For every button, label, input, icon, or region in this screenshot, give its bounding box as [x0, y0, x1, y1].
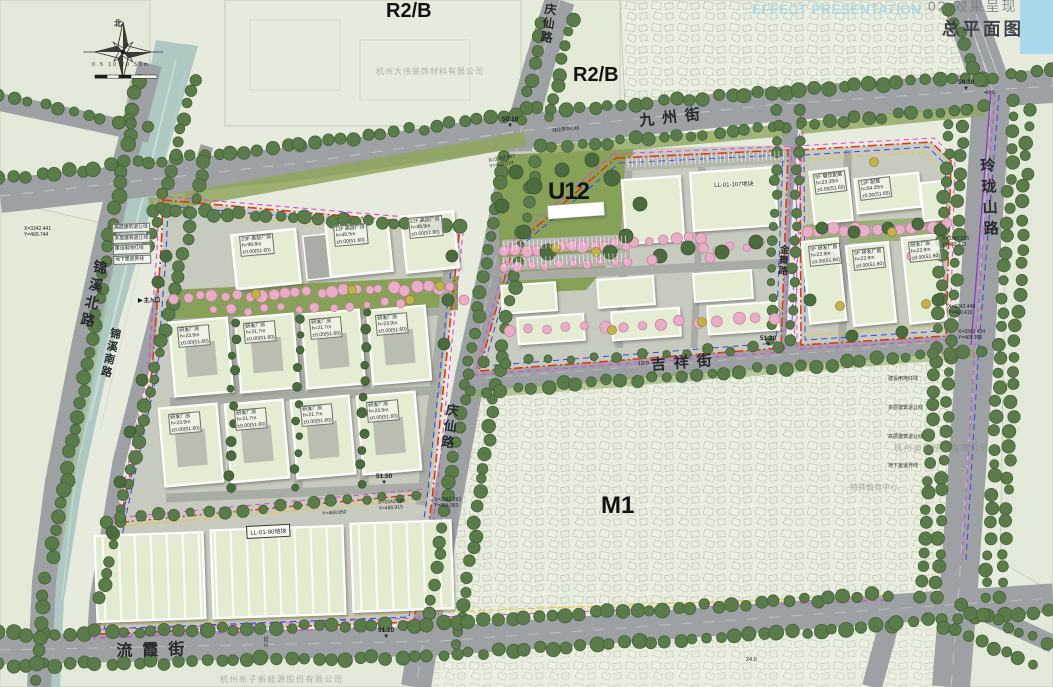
elevation-marker-icon: ▼: [381, 481, 387, 486]
tree-icon: [997, 259, 1010, 272]
building-label: 11F 高层厂房 h=49.9m ±0.00(51.60): [408, 215, 443, 239]
tree-icon: [41, 99, 51, 109]
tree-icon: [251, 145, 262, 156]
tree-icon: [601, 374, 612, 385]
tree-icon: [1001, 472, 1013, 484]
tree-icon: [259, 505, 268, 514]
tree-icon: [288, 213, 298, 223]
tree-icon: [221, 209, 234, 222]
tree-icon: [827, 624, 837, 634]
tree-icon: [363, 129, 374, 140]
tree-icon: [438, 338, 450, 350]
tree-icon: [104, 557, 115, 568]
parking-stall-line: [537, 257, 538, 266]
road-width-label: 32.0: [262, 636, 268, 647]
tree-icon: [578, 139, 587, 148]
tree-icon: [348, 286, 357, 295]
tree-icon: [361, 361, 369, 369]
tree-icon: [546, 142, 556, 152]
tree-icon: [684, 603, 696, 615]
tree-icon: [62, 163, 76, 177]
shed-2: [211, 526, 346, 619]
tree-icon: [461, 395, 471, 405]
tree-icon: [794, 104, 805, 115]
tree-icon: [525, 74, 538, 87]
tree-icon: [937, 280, 948, 291]
tree-icon: [228, 625, 238, 635]
tree-icon: [457, 599, 470, 612]
tree-icon: [1022, 168, 1034, 180]
tree-icon: [934, 224, 946, 236]
tree-icon: [544, 355, 552, 363]
tree-icon: [227, 484, 236, 493]
cherry-tree-icon: [705, 253, 715, 263]
tree-icon: [50, 630, 60, 640]
tree-icon: [442, 294, 454, 306]
tree-icon: [989, 445, 1000, 456]
tree-icon: [949, 105, 960, 116]
tree-icon: [523, 213, 532, 222]
main-entrance-label: ▶ 主入口: [138, 296, 160, 304]
tree-icon: [940, 162, 953, 175]
tree-icon: [237, 147, 250, 160]
tree-icon: [642, 132, 655, 145]
tree-icon: [795, 176, 804, 185]
compass-center: [121, 50, 126, 55]
tree-icon: [158, 623, 170, 635]
tree-icon: [487, 406, 499, 418]
tree-icon: [698, 131, 708, 141]
tree-icon: [223, 146, 237, 160]
plot-label-ll01107: LL-01-107地块: [714, 179, 754, 189]
tree-icon: [933, 560, 946, 573]
tree-icon: [993, 614, 1004, 625]
tree-icon: [552, 244, 561, 253]
tree-icon: [64, 658, 76, 670]
tree-icon: [486, 232, 496, 242]
tree-icon: [752, 86, 764, 98]
entrance-text: 主入口: [144, 296, 161, 304]
tree-icon: [789, 306, 798, 315]
tree-icon: [160, 250, 172, 262]
tree-icon: [767, 595, 779, 607]
tree-icon: [102, 241, 113, 252]
cherry-tree-icon: [580, 322, 588, 330]
cherry-tree-icon: [423, 281, 434, 292]
tree-icon: [555, 163, 569, 177]
tree-icon: [675, 635, 688, 648]
tree-icon: [517, 225, 531, 239]
tree-icon: [590, 102, 602, 114]
tree-icon: [944, 120, 953, 129]
tree-icon: [922, 613, 935, 626]
tree-icon: [433, 536, 445, 548]
tree-icon: [1024, 104, 1036, 116]
tree-icon: [922, 486, 935, 499]
tree-icon: [61, 461, 75, 475]
tree-icon: [791, 83, 806, 98]
tree-icon: [558, 609, 572, 623]
tree-icon: [517, 115, 527, 125]
tree-icon: [70, 424, 80, 434]
tree-icon: [325, 618, 338, 631]
tree-icon: [1015, 70, 1026, 81]
tree-icon: [814, 624, 829, 639]
tree-icon: [461, 587, 471, 597]
tree-icon: [33, 631, 47, 645]
tree-icon: [126, 118, 137, 129]
tree-icon: [1008, 335, 1020, 347]
tree-icon: [226, 451, 236, 461]
tree-icon: [207, 209, 220, 222]
cherry-tree-icon: [698, 243, 708, 253]
tree-icon: [574, 102, 585, 113]
tree-icon: [35, 617, 48, 630]
tree-icon: [57, 483, 72, 498]
tree-icon: [976, 608, 990, 622]
tree-icon: [546, 643, 560, 657]
tree-icon: [985, 516, 997, 528]
tree-icon: [585, 153, 599, 167]
building-label: 研发厂房 h=23.9m ±0.00(51.60): [908, 239, 942, 263]
tree-icon: [993, 368, 1003, 378]
tree-icon: [63, 445, 76, 458]
tree-icon: [431, 120, 443, 132]
site-plan-map: [0, 0, 1053, 687]
tree-icon: [574, 640, 585, 651]
tree-icon: [293, 363, 301, 371]
building-label: 研发厂房 h=21.7m ±0.00(51.60): [234, 407, 268, 430]
tree-icon: [785, 335, 796, 346]
tree-icon: [792, 208, 802, 218]
cherry-tree-icon: [541, 263, 548, 270]
tree-icon: [488, 218, 500, 230]
tree-icon: [826, 360, 839, 373]
tree-icon: [406, 296, 415, 305]
tree-icon: [114, 176, 127, 189]
tree-icon: [774, 120, 784, 130]
tree-icon: [479, 650, 489, 660]
tree-icon: [64, 628, 77, 641]
tree-icon: [471, 500, 483, 512]
tree-icon: [55, 497, 66, 508]
tree-icon: [1004, 395, 1017, 408]
tree-icon: [603, 639, 614, 650]
cherry-tree-icon: [567, 240, 578, 251]
tree-icon: [483, 244, 493, 254]
tree-icon: [687, 634, 697, 644]
tree-icon: [999, 578, 1008, 587]
building-label: 研发厂房 h=23.9m ±0.00(51.60): [168, 411, 202, 434]
tree-icon: [172, 271, 184, 283]
tree-icon: [772, 190, 781, 199]
tree-icon: [1004, 485, 1013, 494]
parking-stall-line: [766, 152, 767, 161]
tree-icon: [738, 124, 749, 135]
tree-icon: [1006, 125, 1019, 138]
tree-icon: [33, 644, 45, 656]
tree-icon: [115, 512, 126, 523]
tree-icon: [772, 147, 783, 158]
tree-icon: [791, 165, 801, 175]
cherry-tree-icon: [366, 286, 374, 294]
tree-icon: [478, 357, 489, 368]
tree-icon: [994, 352, 1006, 364]
elevation-marker: 50.30 ▼: [958, 80, 974, 92]
tree-icon: [286, 652, 299, 665]
tree-icon: [47, 167, 61, 181]
tree-icon: [232, 335, 241, 344]
tree-icon: [889, 616, 903, 630]
tree-icon: [929, 576, 942, 589]
cherry-tree-icon: [543, 325, 552, 334]
tree-icon: [973, 73, 986, 86]
tree-icon: [727, 125, 739, 137]
tree-icon: [114, 476, 126, 488]
tree-icon: [152, 276, 164, 288]
tree-icon: [659, 95, 670, 106]
cherry-tree-icon: [623, 258, 632, 267]
tree-icon: [326, 654, 338, 666]
coord-annotation: X=3342.441 Y=468.744: [24, 226, 51, 238]
tree-icon: [409, 651, 420, 662]
tree-icon: [467, 343, 477, 353]
tree-icon: [671, 130, 683, 142]
tree-icon: [52, 102, 65, 115]
tree-icon: [932, 294, 944, 306]
tree-icon: [602, 101, 612, 111]
cherry-tree-icon: [504, 326, 515, 337]
tree-icon: [240, 623, 253, 636]
tree-icon: [156, 202, 165, 211]
tree-icon: [933, 324, 942, 333]
cherry-tree-icon: [750, 313, 760, 323]
tree-icon: [1005, 455, 1017, 467]
legend-item: 建设用地红线: [113, 244, 151, 254]
tree-icon: [150, 375, 159, 384]
cherry-tree-icon: [658, 235, 668, 245]
parking-stall-line: [670, 156, 671, 165]
tree-icon: [773, 137, 782, 146]
cherry-tree-icon: [210, 306, 217, 313]
tree-icon: [1000, 532, 1012, 544]
tree-icon: [769, 222, 777, 230]
tree-icon: [804, 294, 816, 306]
tree-icon: [756, 596, 768, 608]
tree-icon: [958, 138, 969, 149]
parking-stall-line: [754, 152, 755, 161]
tree-icon: [484, 434, 496, 446]
tree-icon: [927, 369, 939, 381]
tree-icon: [47, 551, 60, 564]
cherry-tree-icon: [446, 283, 454, 291]
tree-icon: [295, 450, 302, 457]
tree-icon: [752, 363, 762, 373]
tree-icon: [616, 100, 627, 111]
tree-icon: [107, 659, 118, 670]
tree-icon: [464, 555, 476, 567]
tree-icon: [8, 171, 20, 183]
elevation-marker: 51.50 ▼: [376, 474, 392, 486]
tree-icon: [176, 248, 189, 261]
tree-icon: [876, 114, 886, 124]
cherry-tree-icon: [459, 295, 469, 305]
cherry-tree-icon: [196, 291, 204, 299]
tree-icon: [797, 122, 804, 129]
tree-icon: [950, 258, 959, 267]
tree-icon: [909, 617, 919, 627]
tree-icon: [520, 102, 533, 115]
tree-icon: [931, 532, 945, 546]
tree-icon: [1014, 628, 1023, 637]
tree-icon: [231, 366, 240, 375]
tree-icon: [1043, 604, 1053, 616]
tree-icon: [156, 348, 165, 357]
tree-icon: [337, 212, 350, 225]
tree-icon: [604, 170, 620, 186]
tree-icon: [471, 113, 482, 124]
cherry-tree-icon: [222, 293, 230, 301]
cherry-tree-icon: [345, 303, 354, 312]
tree-icon: [360, 429, 369, 438]
tree-icon: [564, 27, 573, 36]
cherry-tree-icon: [712, 316, 723, 327]
tree-icon: [425, 595, 435, 605]
tree-icon: [876, 78, 891, 93]
tree-icon: [920, 516, 932, 528]
tree-icon: [990, 460, 999, 469]
tree-icon: [997, 561, 1008, 572]
building-label: 研发厂房 h=21.7m ±0.00(51.60): [300, 403, 334, 426]
tree-icon: [51, 525, 62, 536]
tree-icon: [1020, 151, 1030, 161]
tree-icon: [439, 651, 449, 661]
tree-icon: [848, 226, 860, 238]
tree-icon: [30, 675, 40, 685]
tree-icon: [1001, 185, 1013, 197]
tree-icon: [357, 408, 367, 418]
tree-icon: [945, 149, 955, 159]
tree-icon: [217, 655, 228, 666]
tree-icon: [419, 618, 433, 632]
tree-icon: [7, 660, 20, 673]
tree-icon: [358, 447, 366, 455]
tree-icon: [299, 654, 309, 664]
tree-icon: [629, 131, 642, 144]
tree-icon: [645, 637, 656, 648]
tree-icon: [482, 388, 492, 398]
tree-icon: [138, 415, 149, 426]
tree-icon: [993, 591, 1006, 604]
tree-icon: [129, 451, 143, 465]
tree-icon: [423, 607, 436, 620]
tree-icon: [1005, 203, 1015, 213]
tree-icon: [87, 333, 100, 346]
cherry-tree-icon: [388, 281, 400, 293]
zone-label-r2b-top: R2/B: [386, 0, 432, 23]
cherry-tree-icon: [326, 286, 338, 298]
parking-stall-line: [687, 156, 688, 165]
tree-icon: [1018, 245, 1029, 256]
parking-stall-line: [621, 253, 622, 262]
tree-icon: [942, 378, 954, 390]
tree-icon: [940, 425, 952, 437]
tree-icon: [863, 112, 876, 125]
tree-icon: [937, 190, 950, 203]
elevation-marker-icon: ▼: [383, 635, 389, 640]
setback-legend-right: 建设用地红线 多层建筑退让线 高层建筑退让线 地下室退界线: [888, 356, 923, 490]
tree-icon: [1007, 144, 1017, 154]
tree-icon: [437, 615, 452, 630]
tree-icon: [1016, 194, 1029, 207]
tree-icon: [848, 78, 861, 91]
tree-icon: [118, 155, 130, 167]
street-label-liuxia: 流霞街: [116, 635, 195, 661]
tree-icon: [168, 509, 180, 521]
street-label-linglongshan: 玲珑山路: [976, 157, 1001, 242]
tree-icon: [937, 516, 947, 526]
tree-icon: [429, 579, 441, 591]
tree-icon: [637, 349, 647, 359]
context-block-r2b: [225, 0, 521, 126]
tree-icon: [936, 109, 945, 118]
tree-icon: [183, 220, 196, 233]
tree-icon: [431, 561, 443, 573]
tree-icon: [146, 387, 156, 397]
tree-icon: [228, 655, 239, 666]
tree-icon: [388, 126, 399, 137]
tree-icon: [632, 375, 644, 387]
tree-icon: [748, 341, 759, 352]
tree-icon: [94, 114, 105, 125]
tree-icon: [1011, 608, 1025, 622]
tree-icon: [170, 205, 182, 217]
road-width-label: 40.0: [984, 90, 995, 96]
tree-icon: [290, 465, 299, 474]
tree-icon: [559, 103, 573, 117]
tree-icon: [1007, 175, 1017, 185]
tree-icon: [237, 505, 249, 517]
tree-icon: [514, 383, 523, 392]
tree-icon: [998, 550, 1008, 560]
tree-icon: [769, 175, 779, 185]
tree-icon: [963, 631, 974, 642]
tree-icon: [770, 209, 778, 217]
building-label: 11F 高层厂房 h=49.5m ±0.00(51.60): [333, 223, 368, 247]
tree-icon: [941, 397, 952, 408]
tree-icon: [517, 643, 530, 656]
tree-icon: [224, 471, 234, 481]
tree-icon: [765, 87, 779, 101]
tree-icon: [956, 345, 970, 359]
tree-icon: [169, 283, 181, 295]
tree-icon: [121, 137, 136, 152]
tree-icon: [446, 250, 458, 262]
tree-icon: [504, 296, 514, 306]
tree-icon: [270, 622, 284, 636]
tree-icon: [925, 458, 936, 469]
tree-icon: [1003, 623, 1013, 633]
tree-icon: [590, 353, 598, 361]
tree-icon: [796, 136, 806, 146]
tree-icon: [954, 168, 966, 180]
tree-icon: [990, 410, 1004, 424]
tree-icon: [102, 568, 112, 578]
tree-icon: [985, 488, 998, 501]
tree-icon: [338, 653, 353, 668]
tree-icon: [325, 495, 336, 506]
tree-icon: [492, 643, 505, 656]
